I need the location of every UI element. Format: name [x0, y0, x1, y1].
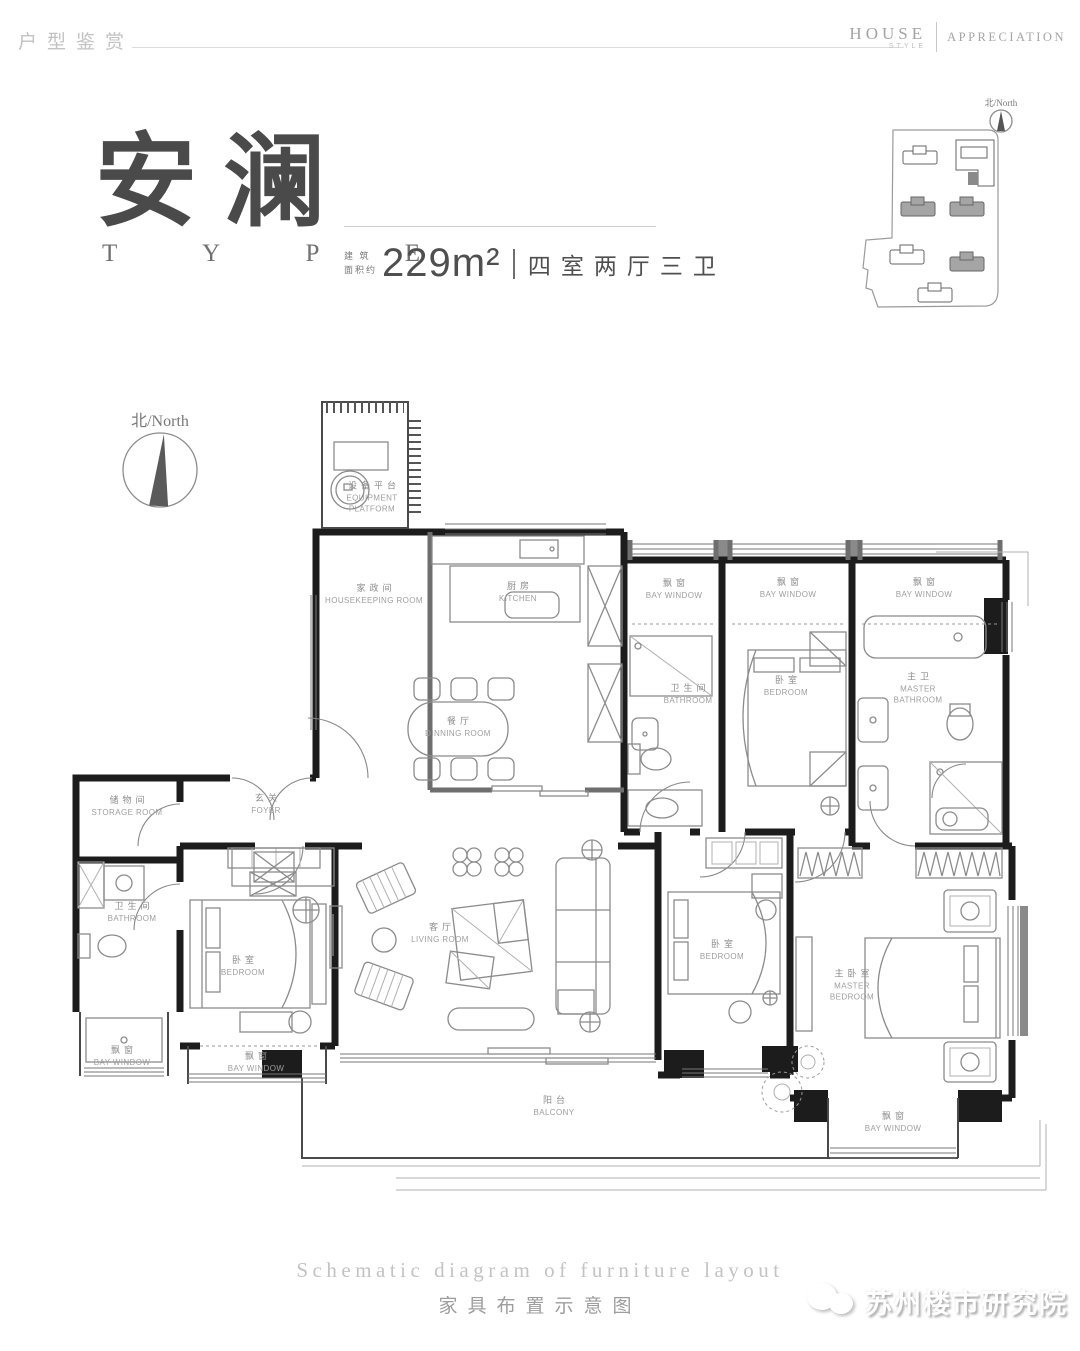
page: 北/North 北/North — [0, 0, 1080, 1351]
equipment-platform — [322, 402, 415, 528]
area-prefix: 建 筑 面积约 — [344, 250, 377, 277]
brand-divider — [936, 22, 937, 52]
brand-primary: HOUSE — [849, 24, 926, 44]
watermark: 苏州楼市研究院 — [807, 1281, 1068, 1321]
site-building — [901, 197, 935, 216]
site-building — [950, 197, 984, 216]
wechat-icon — [807, 1281, 859, 1321]
hero-divider-line — [344, 226, 656, 227]
site-building — [890, 245, 924, 264]
plan-doors — [134, 718, 966, 930]
svg-text:北/North: 北/North — [985, 98, 1018, 108]
site-building — [918, 283, 952, 302]
plan-columns — [262, 540, 1028, 1122]
brand-right: APPRECIATION — [947, 30, 1066, 45]
plan-walls — [76, 532, 1012, 1158]
area-row: 建 筑 面积约 229m² 四室两厅三卫 — [344, 241, 726, 286]
site-building — [956, 140, 994, 186]
area-divider — [513, 249, 515, 279]
caption-en: Schematic diagram of furniture layout — [0, 1258, 1080, 1283]
site-building — [903, 146, 937, 164]
brand-left: HOUSE STYLE — [849, 24, 926, 50]
room-spec: 四室两厅三卫 — [528, 247, 726, 281]
brand-block: HOUSE STYLE APPRECIATION — [849, 22, 1066, 52]
site-building — [950, 252, 984, 271]
svg-text:北/North: 北/North — [131, 412, 189, 430]
brand-secondary: STYLE — [889, 43, 926, 50]
plan-title: 安澜 — [95, 100, 351, 247]
site-plan: 北/North — [863, 98, 1018, 307]
section-title: 户型鉴赏 — [18, 27, 134, 54]
area-value: 229m² — [382, 241, 500, 286]
plan-furniture — [78, 536, 1002, 1112]
header-rule — [132, 47, 904, 48]
site-north-icon: 北/North — [985, 98, 1018, 132]
watermark-text: 苏州楼市研究院 — [865, 1282, 1068, 1321]
north-compass-icon: 北/North — [123, 412, 197, 507]
